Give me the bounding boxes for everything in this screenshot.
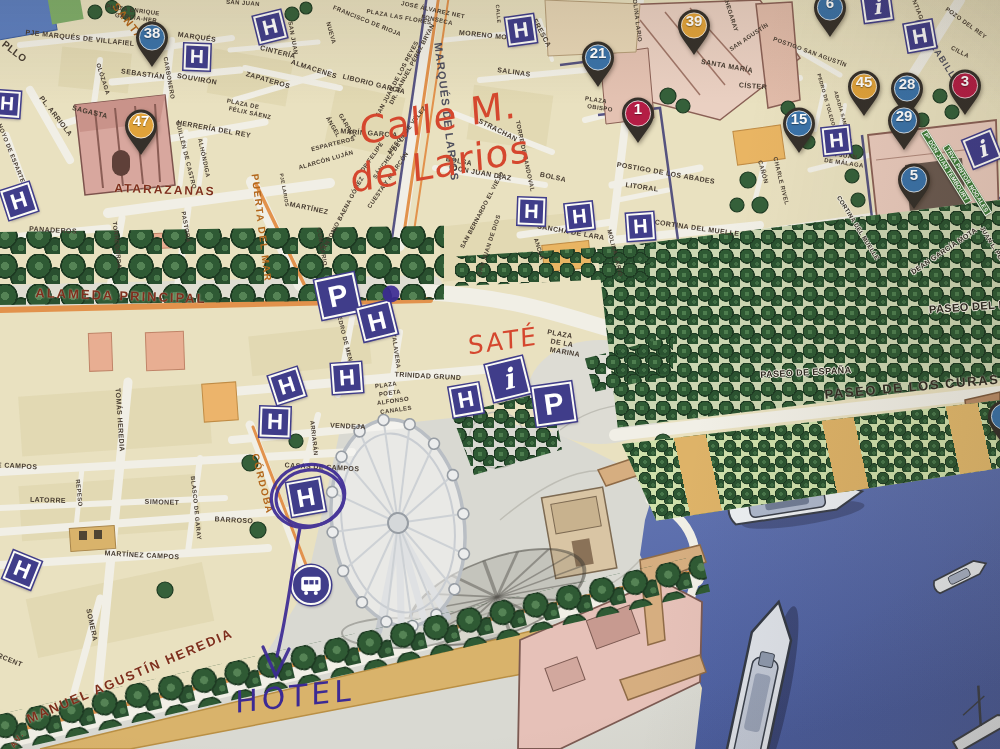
hotel-sign: H <box>517 197 545 225</box>
bus-icon <box>298 572 324 598</box>
hotel-sign: H <box>449 383 484 418</box>
bus-stop-icon <box>291 565 331 605</box>
parking-sign: P <box>314 272 361 319</box>
photographed-tourist-map: SANTAPLLOPJE MARQUÉS DE VILLAFIELPLAZA E… <box>0 0 1000 749</box>
hotel-sign: H <box>184 44 211 71</box>
map-pin-6: 6 <box>812 0 848 38</box>
hotel-sign: H <box>2 550 41 589</box>
info-sign: i <box>861 0 893 23</box>
hotel-sign: H <box>268 367 306 405</box>
hotel-sign: H <box>626 212 655 241</box>
hotel-sign: H <box>259 406 290 437</box>
map-pin-29: 29 <box>886 104 922 151</box>
hotel-sign: H <box>564 201 594 231</box>
hotel-sign: H <box>286 477 325 516</box>
marker-layer: 384721391645282931551HHHHHHiiHHHHPHHHHHi… <box>0 0 1000 749</box>
info-sign: i <box>962 129 1000 168</box>
map-pin-39: 39 <box>676 9 712 56</box>
map-pin-1: 1 <box>620 97 656 144</box>
hotel-sign: H <box>904 20 936 52</box>
hotel-sign: H <box>821 125 851 155</box>
map-pin-15: 15 <box>781 107 817 154</box>
map-pin-47: 47 <box>123 109 159 156</box>
map-pin-1: 1 <box>986 400 1000 447</box>
hotel-sign: H <box>356 300 397 341</box>
hotel-sign: H <box>0 90 21 118</box>
hotel-sign: H <box>253 10 287 44</box>
map-pin-38: 38 <box>134 21 170 68</box>
hotel-sign: H <box>331 362 363 394</box>
map-pin-3: 3 <box>947 69 983 116</box>
map-pin-21: 21 <box>580 41 616 88</box>
info-sign: i <box>485 356 531 402</box>
map-pin-45: 45 <box>846 70 882 117</box>
map-pin-5: 5 <box>896 163 932 210</box>
hotel-sign: H <box>0 182 38 220</box>
hotel-sign: H <box>505 14 537 46</box>
parking-sign: P <box>531 381 576 426</box>
